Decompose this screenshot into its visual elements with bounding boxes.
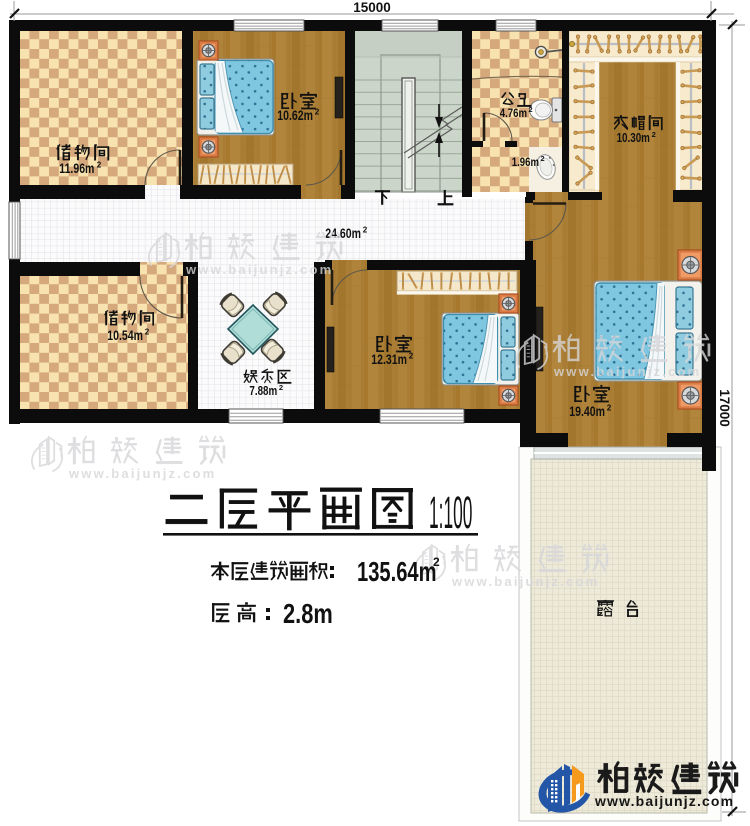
svg-text:2: 2 [315,108,320,117]
svg-text:2: 2 [145,328,150,337]
svg-text:19.40m: 19.40m [569,404,605,420]
svg-text:2: 2 [363,226,368,235]
svg-text:2.8m: 2.8m [283,598,333,629]
svg-text:2: 2 [279,383,283,392]
svg-text:7.88m: 7.88m [249,385,277,398]
svg-text:2: 2 [433,555,440,569]
svg-text:1:100: 1:100 [429,488,472,538]
svg-text:www.baijunjz.com: www.baijunjz.com [185,262,333,277]
svg-text:2: 2 [97,161,102,170]
svg-text:4.76m: 4.76m [500,107,527,120]
svg-text:www.baijunjz.com: www.baijunjz.com [451,574,599,589]
svg-text:12.31m: 12.31m [371,352,407,368]
svg-text:11.96m: 11.96m [59,161,94,177]
svg-text:www.baijunjz.com: www.baijunjz.com [68,466,216,481]
svg-text:24.60m: 24.60m [325,226,361,242]
svg-text:2: 2 [529,105,533,114]
svg-text:2: 2 [652,130,656,139]
svg-text:10.62m: 10.62m [277,108,313,124]
svg-text:2: 2 [409,352,414,361]
svg-text:135.64m: 135.64m [357,557,437,588]
svg-text:www.baijunjz.com: www.baijunjz.com [553,364,701,379]
svg-text:15000: 15000 [353,0,391,15]
svg-text:1.96m: 1.96m [512,156,539,169]
svg-text:2: 2 [541,154,545,163]
svg-text:10.30m: 10.30m [617,132,650,145]
svg-text:2: 2 [607,404,612,413]
svg-text:10.54m: 10.54m [107,328,143,344]
svg-text:www.baijunjz.com: www.baijunjz.com [594,793,734,809]
svg-text:17000: 17000 [717,389,732,427]
